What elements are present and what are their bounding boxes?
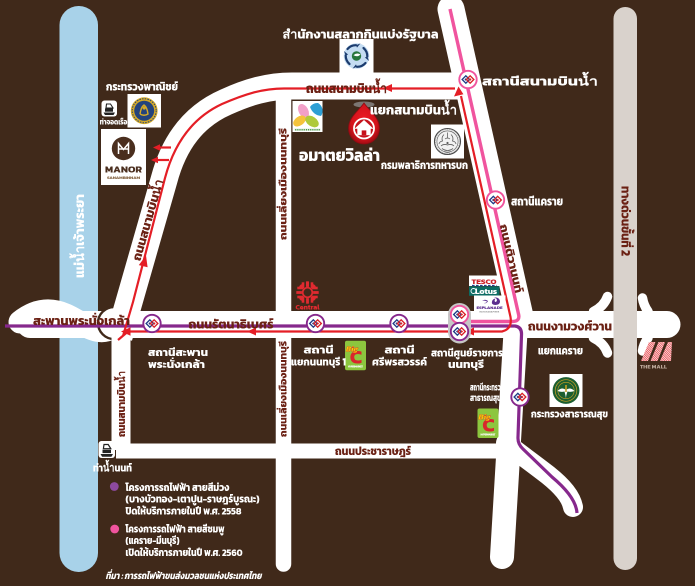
svg-text:Central: Central: [296, 302, 321, 313]
svg-text:ท่าจอดเรือ: ท่าจอดเรือ: [100, 117, 128, 129]
svg-text:แยกแคราย: แยกแคราย: [538, 342, 583, 360]
svg-text:MANOR: MANOR: [105, 163, 143, 177]
svg-text:ท่าน้ำนนท์: ท่าน้ำนนท์: [93, 460, 132, 477]
svg-text:พระนั่งเกล้า: พระนั่งเกล้า: [148, 357, 205, 373]
svg-text:แม่น้ำเจ้าพระยา: แม่น้ำเจ้าพระยา: [69, 194, 90, 278]
svg-text:RATCHADAPISEK: RATCHADAPISEK: [480, 311, 501, 314]
svg-text:กระทรวงสาธารณสุข: กระทรวงสาธารณสุข: [531, 407, 608, 423]
svg-text:ถนนงามวงศ์วาน: ถนนงามวงศ์วาน: [528, 318, 612, 337]
svg-text:ศรีพรสวรรค์: ศรีพรสวรรค์: [372, 355, 427, 371]
svg-text:ถนนเลี่ยงเมืองนนทบุรี: ถนนเลี่ยงเมืองนนทบุรี: [276, 341, 291, 437]
svg-text:นนทบุรี: นนทบุรี: [448, 357, 484, 373]
svg-text:สะพานพระนั่งเกล้า: สะพานพระนั่งเกล้า: [33, 311, 130, 330]
svg-text:ถนนสนามบินน้ำ: ถนนสนามบินน้ำ: [113, 371, 130, 437]
svg-text:SANAMBINNAM: SANAMBINNAM: [107, 176, 140, 181]
svg-text:สำนักงานสลากกินแบ่งรัฐบาล: สำนักงานสลากกินแบ่งรัฐบาล: [283, 25, 439, 44]
svg-text:ถนนรัตนาธิเบศร์: ถนนรัตนาธิเบศร์: [189, 316, 274, 335]
svg-text:Big: Big: [478, 412, 491, 424]
svg-text:ถนนเลี่ยงเมืองนนทบุรี: ถนนเลี่ยงเมืองนนทบุรี: [276, 128, 291, 240]
svg-text:aaaaaaaaaaaa: aaaaaaaaaaaa: [295, 129, 321, 133]
svg-text:สาธารณสุข: สาธารณสุข: [470, 391, 501, 405]
svg-text:ที่มา : การรถไฟฟ้าขนส่งมวลชนแห: ที่มา : การรถไฟฟ้าขนส่งมวลชนแห่งประเทศไท…: [105, 568, 264, 583]
svg-text:HYPERMARKET: HYPERMARKET: [481, 432, 497, 437]
svg-text:แยกสนามบินน้ำ: แยกสนามบินน้ำ: [370, 100, 457, 121]
svg-text:สถานีแคราย: สถานีแคราย: [511, 192, 563, 211]
svg-text:อมาตยวิลล่า: อมาตยวิลล่า: [299, 142, 380, 168]
svg-text:ถนนสนามบินน้ำ: ถนนสนามบินน้ำ: [306, 78, 387, 99]
svg-text:กระทรวงพาณิชย์: กระทรวงพาณิชย์: [106, 78, 178, 96]
svg-text:ปิดให้บริการภายในปี พ.ศ. 2558: ปิดให้บริการภายในปี พ.ศ. 2558: [124, 504, 242, 520]
svg-text:สถานีสนามบินน้ำ: สถานีสนามบินน้ำ: [482, 72, 598, 91]
svg-text:ทางด่วนขั้นที่ 2: ทางด่วนขั้นที่ 2: [615, 186, 635, 256]
svg-text:แยกนนทบุรี 1: แยกนนทบุรี 1: [291, 355, 346, 371]
svg-text:THE MALL: THE MALL: [640, 364, 668, 371]
svg-text:ถนนประชาราษฎร์: ถนนประชาราษฎร์: [335, 442, 411, 460]
svg-text:กรมพลาธิการทหารบก: กรมพลาธิการทหารบก: [381, 156, 469, 174]
svg-text:เปิดให้บริการภายในปี พ.ศ. 2560: เปิดให้บริการภายในปี พ.ศ. 2560: [126, 545, 244, 561]
